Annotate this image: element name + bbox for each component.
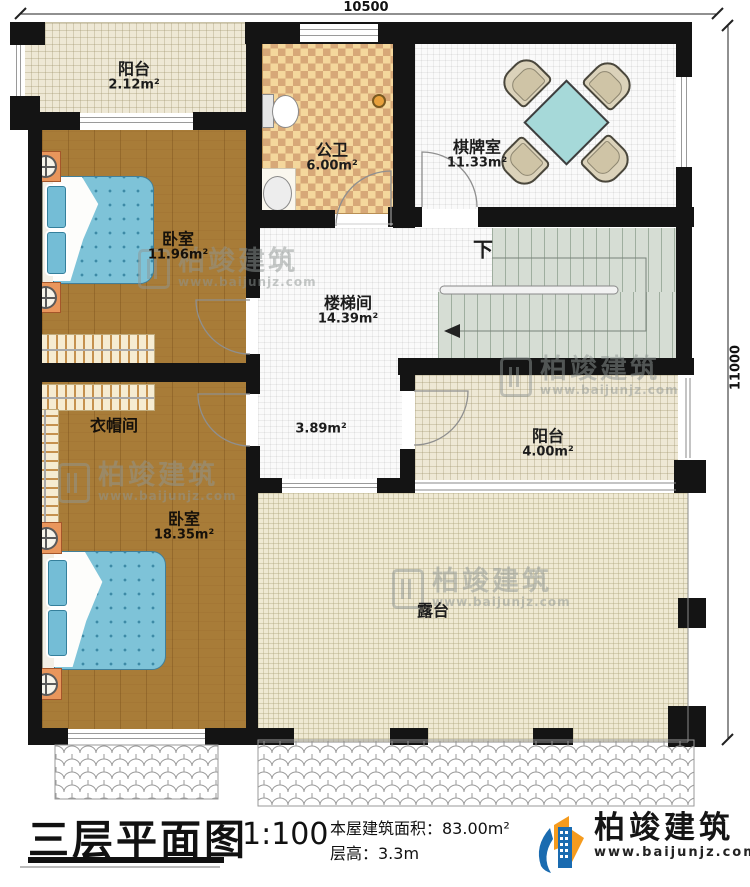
label-stairs-down: 下 bbox=[473, 239, 493, 262]
wall-balcony-right-bot bbox=[400, 449, 415, 480]
pillar-terrace-3 bbox=[533, 728, 573, 745]
label-chess-room: 棋牌室 11.33m² bbox=[447, 138, 507, 171]
floor-height-line: 层高：3.3m bbox=[330, 842, 510, 867]
label-bedroom2: 卧室 18.35m² bbox=[154, 510, 214, 543]
wall-balcony-right-top bbox=[400, 375, 415, 391]
wall-corridor-bottom-l bbox=[246, 478, 282, 493]
bed2-pillow-top bbox=[48, 560, 67, 606]
bedroom1-wardrobe bbox=[30, 334, 155, 365]
wall-right-mid bbox=[676, 167, 692, 375]
brand-name: 柏竣建筑 bbox=[594, 812, 750, 845]
wall-bedroom-divider bbox=[28, 363, 260, 382]
dimension-top: 10500 bbox=[336, 0, 396, 15]
wall-left-main bbox=[28, 128, 42, 745]
label-bathroom: 公卫 6.00m² bbox=[306, 141, 357, 174]
brand-logo-icon bbox=[534, 812, 588, 874]
title-underline bbox=[28, 857, 224, 863]
wall-stairs-bottom bbox=[398, 358, 694, 375]
wall-bathroom-right bbox=[393, 26, 415, 228]
roof-strip-right bbox=[258, 740, 694, 806]
window-balcony-left bbox=[12, 45, 25, 96]
roof-strip-left bbox=[55, 745, 218, 799]
pillar-terrace-2 bbox=[390, 728, 428, 745]
label-stairwell: 楼梯间 14.39m² bbox=[318, 294, 378, 327]
bed1-pillow-top bbox=[47, 186, 66, 228]
brand-logo-text: 柏竣建筑 www.baijunjz.com bbox=[594, 812, 750, 860]
wall-corridor-bottom-r bbox=[377, 478, 415, 493]
window-chess-right bbox=[676, 77, 692, 167]
wall-light-icon bbox=[372, 94, 386, 108]
bed1-pillow-bottom bbox=[47, 232, 66, 274]
pillar-terrace-right bbox=[678, 598, 706, 628]
drawing-info: 本屋建筑面积：83.00m² 层高：3.3m bbox=[330, 817, 510, 867]
window-balcony-bottom bbox=[80, 113, 193, 128]
dimension-right: 11000 bbox=[729, 338, 744, 398]
building-area-line: 本屋建筑面积：83.00m² bbox=[330, 817, 510, 842]
label-balcony-right: 阳台 4.00m² bbox=[522, 427, 573, 460]
drawing-scale: 1:100 bbox=[242, 817, 328, 852]
sink-basin bbox=[263, 176, 292, 211]
terrace-floor bbox=[258, 493, 688, 742]
pillar-terrace-corner bbox=[668, 706, 706, 747]
pillar-terrace-1 bbox=[258, 728, 294, 745]
wall-terrace-left bbox=[246, 493, 258, 742]
title-underline-2 bbox=[20, 866, 220, 868]
stair-flight-lower bbox=[438, 292, 678, 358]
label-bedroom1: 卧室 11.96m² bbox=[148, 230, 208, 263]
brand-site: www.baijunjz.com bbox=[594, 845, 750, 860]
cloakroom-wardrobe-top bbox=[30, 384, 155, 411]
toilet-bowl bbox=[272, 95, 299, 128]
wall-chess-bottom-r bbox=[478, 207, 694, 227]
wall-right-upper bbox=[676, 44, 692, 77]
wall-bottom-b2-l bbox=[28, 728, 68, 745]
wall-chess-bottom-l bbox=[388, 207, 422, 227]
label-terrace: 露台 bbox=[417, 602, 449, 620]
bed2-pillow-bottom bbox=[48, 610, 67, 656]
window-corridor-bottom bbox=[282, 479, 377, 492]
stair-flight-upper bbox=[492, 228, 678, 292]
floor-plan-page: 柏竣建筑 www.baijunjz.com 柏竣建筑 www.baijunjz.… bbox=[0, 0, 750, 887]
window-bathroom-top bbox=[300, 24, 378, 42]
label-balcony-top: 阳台 2.12m² bbox=[108, 60, 159, 93]
pillar-balcony-right bbox=[674, 460, 706, 493]
wall-balcony-corner-tl bbox=[10, 22, 45, 45]
label-hall-area: 3.89m² bbox=[295, 423, 346, 438]
brand-logo: 柏竣建筑 www.baijunjz.com bbox=[534, 812, 750, 874]
window-bedroom2-bottom bbox=[68, 729, 205, 744]
wall-bathroom-bottom bbox=[246, 210, 335, 228]
label-cloakroom: 衣帽间 bbox=[90, 417, 138, 435]
